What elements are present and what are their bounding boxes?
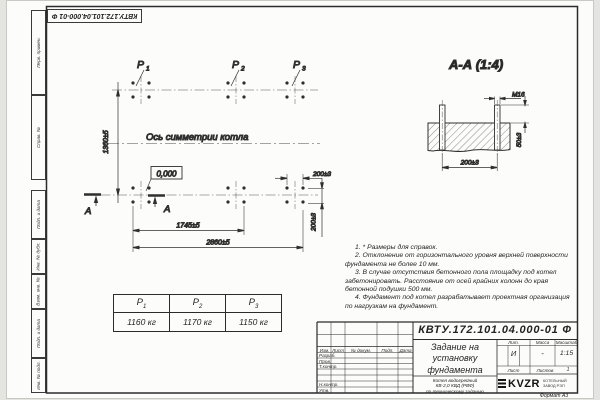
top-doc-number: КВТУ.172.101.04.000-01 Ф (52, 12, 138, 19)
row-razrab: Разраб. (319, 353, 336, 358)
margin-field-inv-dubl: Инв. № дубл. (31, 239, 46, 274)
foundation-plan: Р 1 Р 2 Р 3 Ось симметрии котла 0,000 13… (84, 59, 331, 252)
section-letter: А (163, 204, 170, 215)
title-block-doc-number: КВТУ.172.101.04.000-01 Ф (413, 324, 577, 336)
load-point-sub: 1 (146, 66, 150, 73)
elevation-value: 0,000 (156, 170, 177, 179)
margin-field-label: Подп. и дата (36, 319, 41, 348)
margin-field-podp-data-2: Подп. и дата (31, 309, 46, 358)
header-sub: 1 (143, 304, 146, 310)
section-view: А-А (1:4) М16 50±3 (428, 57, 529, 171)
margin-field-inv-podl: Инв. № подл. (31, 358, 46, 393)
note-2: 2. Отклонение от горизонтального уровня … (345, 252, 579, 269)
margin-field-perv-primen: Перв. примен. (31, 10, 46, 95)
margin-field-label: Инв. № подл. (36, 361, 41, 390)
note-4: 4. Фундамент под котел разрабатывает про… (345, 294, 579, 311)
section-letter: А (84, 206, 91, 217)
sheets-label: Листов (530, 368, 560, 373)
company-logo: KVZR КОТЕЛЬНЫЙ ЗАВОД РЭП (498, 376, 577, 393)
section-cut-marks: А А (84, 195, 170, 218)
col-data: Дата (399, 348, 412, 353)
load-value: 1170 кг (170, 313, 226, 332)
load-point-sub: 3 (302, 66, 306, 73)
mass-value: - (530, 349, 555, 358)
header-sub: 3 (255, 304, 258, 310)
dim-1745: 1745±5 (176, 223, 199, 230)
load-point-label: Р (293, 59, 300, 71)
margin-field-label: Подп. и дата (36, 200, 41, 229)
col-list: Лист (332, 348, 344, 353)
title-block-doc-title: Задание на установку фундамента (414, 342, 496, 377)
drawing-sheet: Р 1 Р 2 Р 3 Ось симметрии котла 0,000 13… (0, 0, 600, 400)
dim-200-horiz: 200±3 (312, 171, 331, 178)
load-value: 1150 кг (226, 313, 282, 332)
col-podp: Подп. (378, 348, 397, 353)
row-nkontr: Н.контр. (319, 382, 338, 387)
row-utv: Утв. (319, 388, 329, 393)
dim-1360: 1360±5 (103, 130, 110, 153)
margin-field-label: Инв. № дубл. (36, 242, 41, 270)
section-title: А-А (1:4) (448, 57, 503, 72)
dim-2860: 2860±5 (205, 240, 229, 247)
margin-field-sprav: Справ. № (31, 95, 46, 180)
load-point-label: Р (232, 59, 239, 71)
col-izm: Изм. (319, 348, 331, 353)
dim-200-vert: 200±3 (311, 213, 318, 232)
load-table-header: Р3 (226, 295, 282, 313)
logo-caption: КОТЕЛЬНЫЙ ЗАВОД РЭП (543, 379, 567, 388)
load-table-header: Р1 (114, 295, 170, 313)
load-point-label: Р (137, 59, 144, 71)
sheets-value: 1 (560, 367, 576, 373)
lit-label: Лит. (497, 340, 530, 345)
col-ndoc: № докум. (346, 348, 376, 353)
notes-block: 1. * Размеры для справок. 2. Отклонение … (345, 244, 579, 311)
sheet-label: Лист (497, 368, 530, 373)
margin-field-label: Перв. примен. (36, 37, 41, 68)
note-3: 3. В случае отсутствия бетонного пола пл… (345, 269, 579, 294)
row-prov: Пров. (319, 359, 331, 364)
load-table-header: Р2 (170, 295, 226, 313)
row-tkontr: Т.контр. (319, 364, 338, 369)
load-table-value-row: 1160 кг 1170 кг 1150 кг (114, 313, 282, 332)
dim-50: 50±3 (516, 132, 523, 147)
top-doc-number-stamp: КВТУ.172.101.04.000-01 Ф (47, 9, 142, 23)
load-value: 1160 кг (114, 313, 170, 332)
margin-field-label: Справ. № (36, 127, 41, 148)
format-label: Формат А3 (530, 393, 578, 399)
coil-logo-icon (498, 379, 506, 390)
title-block-product: Котел водогрейный КВ-2,0 КВД (РВФ) по те… (414, 378, 496, 395)
load-table: Р1 Р2 Р3 1160 кг 1170 кг 1150 кг (113, 294, 282, 332)
load-table-header-row: Р1 Р2 Р3 (114, 295, 282, 313)
header-sub: 2 (199, 304, 202, 310)
margin-field-vzam-inv: Взам. инв. № (31, 274, 46, 309)
scale-value: 1:15 (555, 350, 578, 357)
dim-200-section: 200±3 (460, 160, 479, 167)
margin-field-label: Взам. инв. № (36, 277, 41, 305)
scale-label: Масштаб (555, 340, 578, 345)
load-point-sub: 2 (240, 66, 245, 73)
symmetry-axis-label: Ось симметрии котла (146, 132, 248, 143)
margin-field-podp-data-1: Подп. и дата (31, 190, 46, 239)
thread-label: М16 (512, 92, 525, 99)
logo-text: KVZR (508, 378, 540, 390)
mass-label: Масса (530, 340, 555, 345)
lit-value: И (497, 349, 530, 358)
